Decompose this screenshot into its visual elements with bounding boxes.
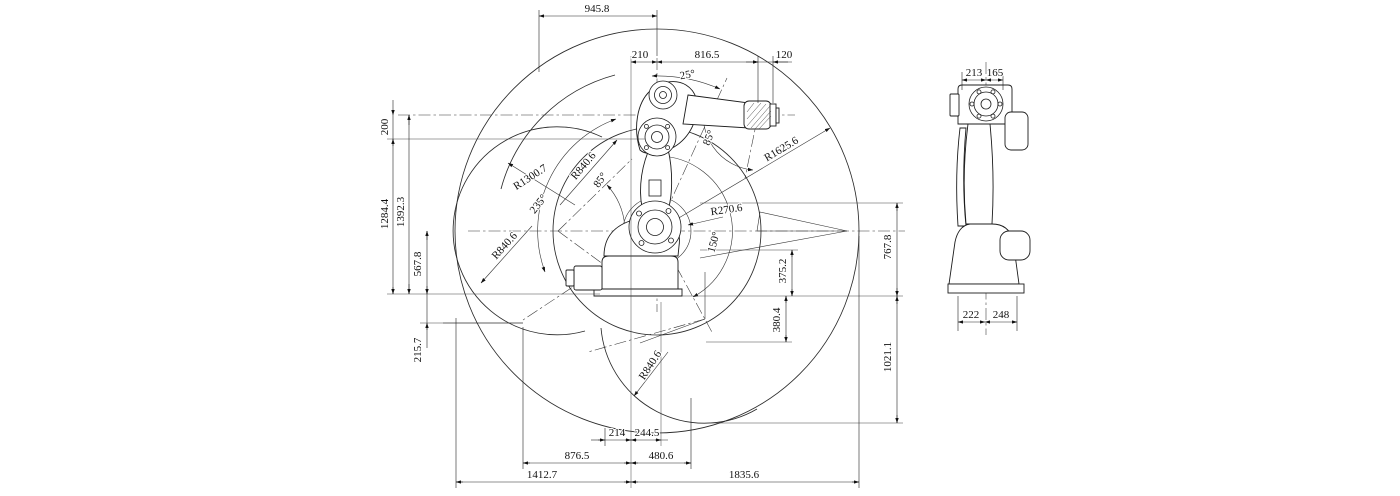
dim-1835-6: 1835.6: [729, 469, 760, 481]
dim-945-8: 945.8: [585, 3, 610, 15]
envelope-bottom-arc: [601, 328, 757, 423]
radius-r1300-7: R1300.7: [511, 162, 549, 193]
side-wrist-cap: [950, 94, 959, 116]
base-plate: [594, 289, 682, 296]
dim-1412-7: 1412.7: [527, 469, 558, 481]
radius-r270-6: R270.6: [710, 202, 744, 218]
dim-244-5: 244.5: [635, 427, 660, 439]
wrist-flange: [770, 104, 776, 126]
radius-r840-6-left: R840.6: [490, 230, 521, 262]
dim-767-8: 767.8: [882, 234, 894, 259]
dim-380-4: 380.4: [771, 307, 783, 332]
dim-210: 210: [632, 49, 649, 61]
radius-r840-6-bottom: R840.6: [637, 348, 665, 382]
tool-tip: [776, 108, 779, 123]
dim-214: 214: [609, 427, 626, 439]
front-view: 945.8 210 816.5 120 200 1284.4 1392.3 56…: [379, 3, 905, 488]
forearm: [683, 95, 749, 128]
base-body: [602, 256, 678, 289]
dim-1392-3: 1392.3: [395, 196, 407, 227]
angle-150: 150°: [706, 231, 723, 254]
dim-215-7: 215.7: [412, 337, 424, 362]
dim-567-8: 567.8: [412, 251, 424, 276]
j1-motor-cap: [566, 270, 574, 286]
dim-480-6: 480.6: [649, 450, 674, 462]
drawing-canvas: 945.8 210 816.5 120 200 1284.4 1392.3 56…: [0, 0, 1400, 496]
dim-248: 248: [993, 309, 1010, 321]
dim-1021-1: 1021.1: [882, 342, 894, 372]
right-wedge: [757, 212, 847, 231]
leader-r270: [688, 217, 723, 225]
dim-1284-4: 1284.4: [379, 198, 391, 229]
cusp-limit-line: [588, 319, 705, 352]
leader-r1625: [672, 128, 830, 222]
side-view: 213 165 222 248: [948, 62, 1030, 335]
side-j1-cylinder: [1000, 231, 1030, 260]
cusp-slant-line: [640, 319, 705, 343]
dim-222: 222: [963, 309, 980, 321]
dim-120: 120: [776, 49, 793, 61]
angle-85-left: 85°: [591, 171, 610, 191]
dim-200: 200: [379, 118, 391, 135]
dim-213: 213: [966, 67, 983, 79]
angle-235: 235°: [527, 192, 549, 216]
radius-r1625-6: R1625.6: [762, 134, 801, 164]
dim-876-5: 876.5: [565, 450, 590, 462]
side-base-plate: [948, 284, 1024, 293]
dim-165: 165: [987, 67, 1004, 79]
dim-375-2: 375.2: [777, 259, 789, 284]
side-motor: [1005, 112, 1028, 150]
j1-motor: [574, 266, 602, 290]
robot-side-silhouette: [948, 85, 1030, 293]
robot-working-range-drawing: 945.8 210 816.5 120 200 1284.4 1392.3 56…: [0, 0, 1400, 496]
side-column: [964, 124, 993, 224]
dim-816-5: 816.5: [695, 49, 720, 61]
